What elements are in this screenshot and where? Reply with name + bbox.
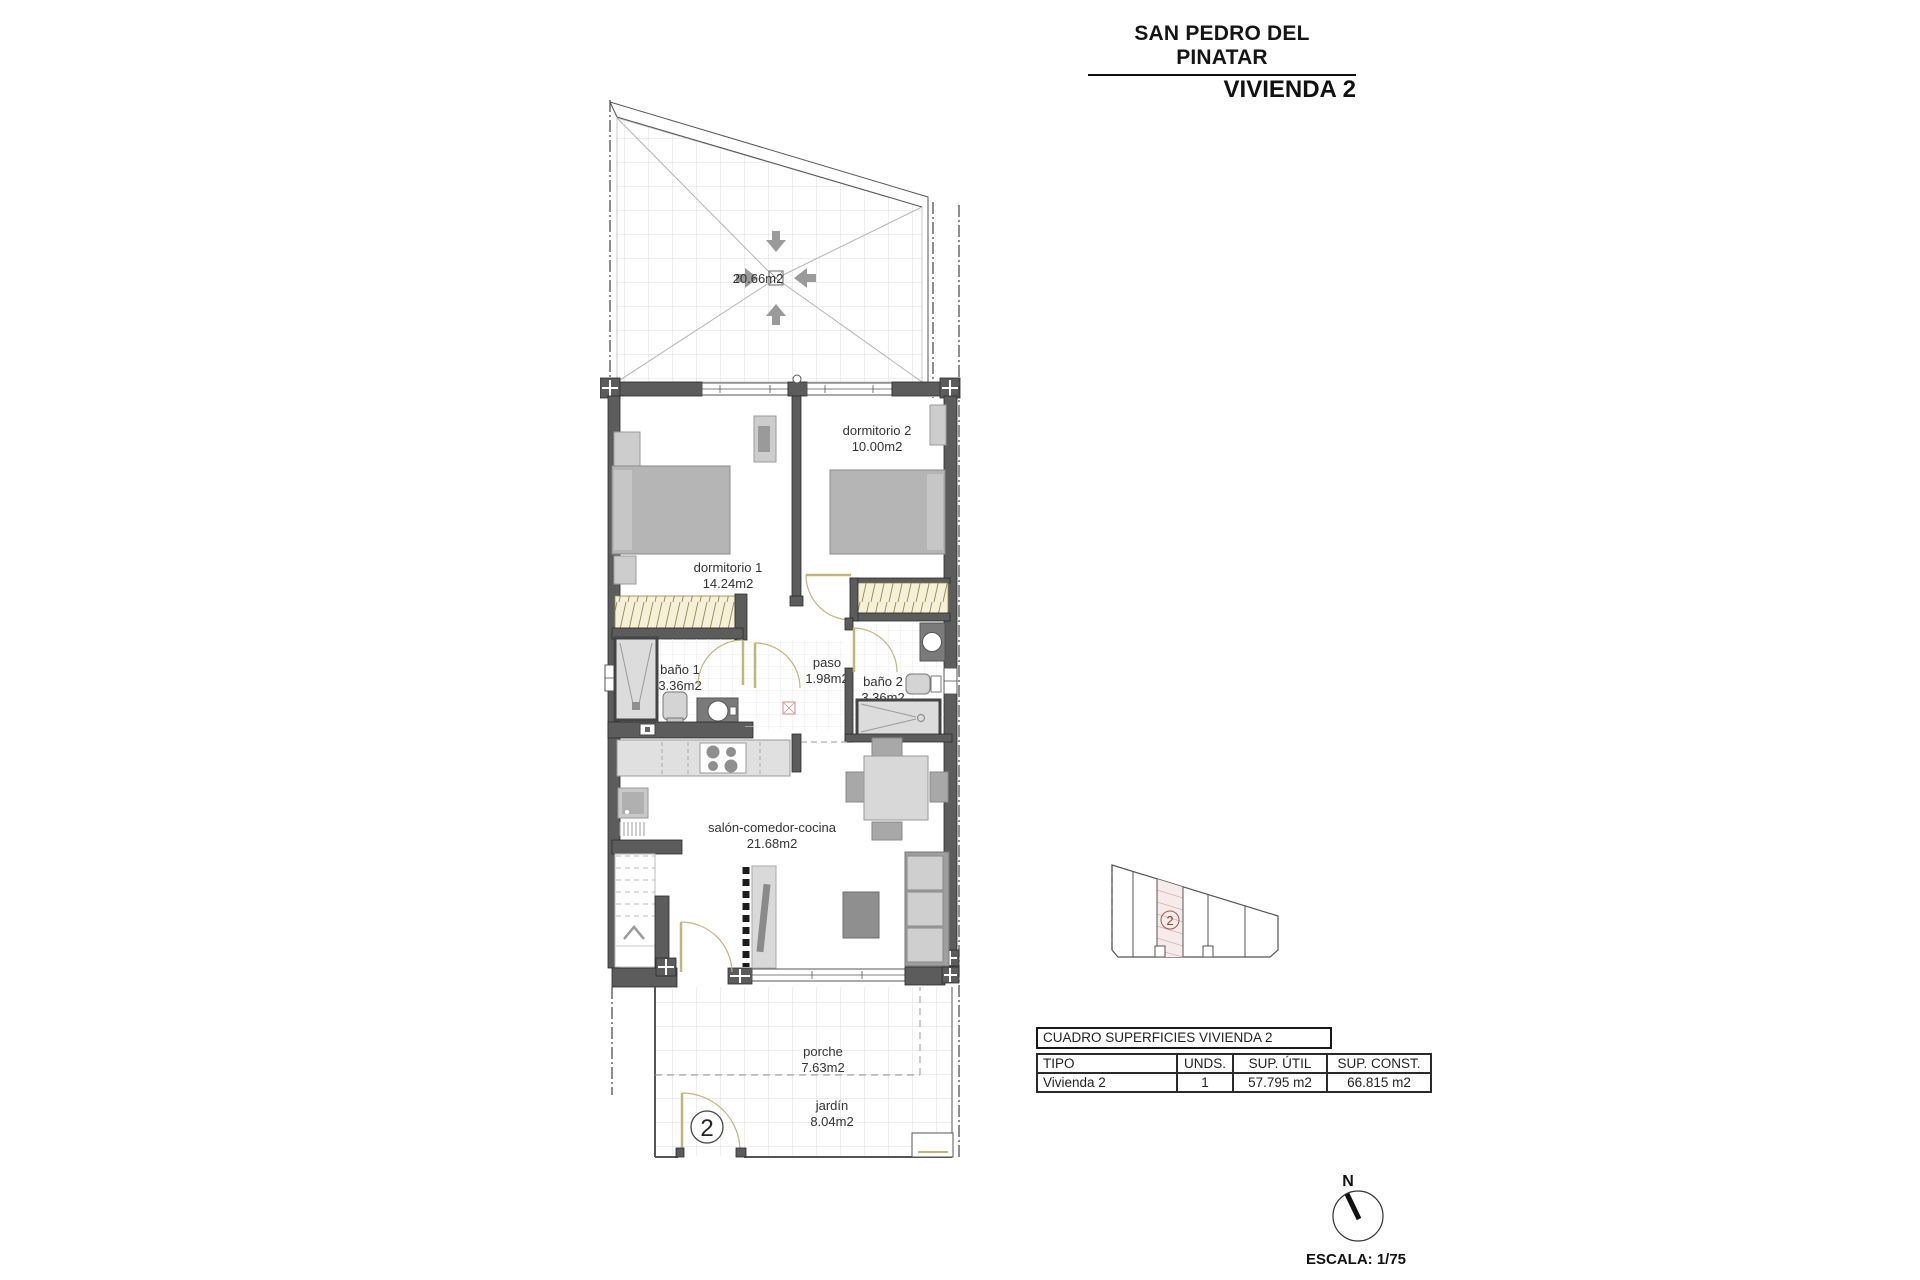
divider-wall bbox=[792, 396, 801, 604]
salon-comedor-cocina: salón-comedor-cocina 21.68m2 bbox=[612, 734, 949, 976]
porch-garden: porche 7.63m2 jardín 8.04m2 2 bbox=[612, 987, 953, 1157]
site-unit-number: 2 bbox=[1166, 913, 1173, 928]
entrance-door bbox=[681, 922, 732, 972]
paso: paso 1.98m2 bbox=[745, 639, 849, 731]
table-header-row: TIPO UNDS. SUP. ÚTIL SUP. CONST. bbox=[1037, 1054, 1431, 1073]
nightstand bbox=[614, 556, 636, 584]
kitchen-counter bbox=[617, 740, 790, 776]
washbasin bbox=[697, 698, 738, 724]
room-label: paso bbox=[813, 655, 841, 670]
room-area-label: 21.68m2 bbox=[747, 836, 798, 851]
dormitorio-2: dormitorio 2 10.00m2 bbox=[790, 396, 950, 621]
surface-table: CUADRO SUPERFICIES VIVIENDA 2 TIPO UNDS.… bbox=[1036, 1027, 1432, 1093]
col-sup-util: SUP. ÚTIL bbox=[1233, 1054, 1327, 1073]
fridge bbox=[618, 788, 648, 836]
floor-plan: 20.66m2 bbox=[600, 90, 1000, 1170]
table-row: Vivienda 2 1 57.795 m2 66.815 m2 bbox=[1037, 1073, 1431, 1092]
shower bbox=[615, 638, 657, 720]
room-area-label: 1.98m2 bbox=[805, 671, 848, 686]
unit-title: VIVIENDA 2 bbox=[1150, 76, 1356, 104]
bathtub bbox=[857, 700, 940, 736]
dining-table bbox=[846, 738, 948, 840]
col-sup-const: SUP. CONST. bbox=[1327, 1054, 1431, 1073]
nightstand bbox=[930, 405, 946, 445]
north-compass: N bbox=[1320, 1168, 1410, 1253]
washbasin bbox=[920, 623, 945, 661]
cell-sup-const: 66.815 m2 bbox=[1327, 1073, 1431, 1092]
room-area-label: 8.04m2 bbox=[810, 1114, 853, 1129]
staircase bbox=[612, 840, 682, 976]
north-needle-icon bbox=[1347, 1194, 1359, 1219]
room-area-label: 14.24m2 bbox=[703, 576, 754, 591]
room-area-label: 10.00m2 bbox=[852, 439, 903, 454]
bano-2: baño 2 3.36m2 bbox=[845, 618, 952, 742]
page: SAN PEDRO DEL PINATAR VIVIENDA 2 bbox=[0, 0, 1920, 1280]
window-bano2 bbox=[944, 668, 957, 694]
coffee-table bbox=[843, 892, 879, 938]
desk bbox=[754, 416, 776, 462]
sofa bbox=[905, 852, 949, 966]
surface-table-title: CUADRO SUPERFICIES VIVIENDA 2 bbox=[1036, 1027, 1332, 1049]
kitchen-pier bbox=[792, 734, 801, 772]
bano-1: baño 1 3.36m2 bbox=[608, 638, 753, 738]
room-label: porche bbox=[803, 1044, 843, 1059]
location-title: SAN PEDRO DEL PINATAR bbox=[1088, 22, 1356, 76]
door-arc-dorm2 bbox=[806, 575, 851, 620]
downpipe-icon bbox=[793, 375, 801, 383]
room-area-label: 3.36m2 bbox=[658, 678, 701, 693]
room-label: salón-comedor-cocina bbox=[708, 820, 837, 835]
room-area-label: 7.63m2 bbox=[801, 1060, 844, 1075]
toilet bbox=[906, 674, 941, 694]
tv-cabinet bbox=[752, 866, 776, 968]
cell-sup-util: 57.795 m2 bbox=[1233, 1073, 1327, 1092]
nightstand bbox=[614, 432, 640, 466]
stove bbox=[700, 743, 746, 773]
col-unds: UNDS. bbox=[1177, 1054, 1233, 1073]
north-label: N bbox=[1342, 1173, 1354, 1190]
terrace-area-label: 20.66m2 bbox=[733, 271, 784, 286]
room-label: dormitorio 1 bbox=[694, 560, 763, 575]
scale-label: ESCALA: 1/75 bbox=[1306, 1251, 1406, 1268]
terrace: 20.66m2 bbox=[610, 100, 933, 398]
garden-step bbox=[912, 1133, 953, 1157]
entrance-number: 2 bbox=[700, 1115, 713, 1142]
cell-unds: 1 bbox=[1177, 1073, 1233, 1092]
wardrobe-dorm2 bbox=[850, 578, 950, 621]
cell-tipo: Vivienda 2 bbox=[1037, 1073, 1177, 1092]
col-tipo: TIPO bbox=[1037, 1054, 1177, 1073]
room-label: dormitorio 2 bbox=[843, 423, 912, 438]
shutter-box bbox=[783, 702, 795, 714]
dormitorio-1: dormitorio 1 14.24m2 bbox=[612, 416, 776, 640]
room-label: baño 2 bbox=[863, 674, 903, 689]
room-label: jardín bbox=[815, 1098, 849, 1113]
room-label: baño 1 bbox=[660, 662, 700, 677]
toilet bbox=[663, 692, 687, 726]
entrance-number-badge: 2 bbox=[691, 1111, 723, 1143]
wardrobe-dorm1 bbox=[612, 594, 747, 640]
site-plan: 2 bbox=[1100, 850, 1300, 970]
